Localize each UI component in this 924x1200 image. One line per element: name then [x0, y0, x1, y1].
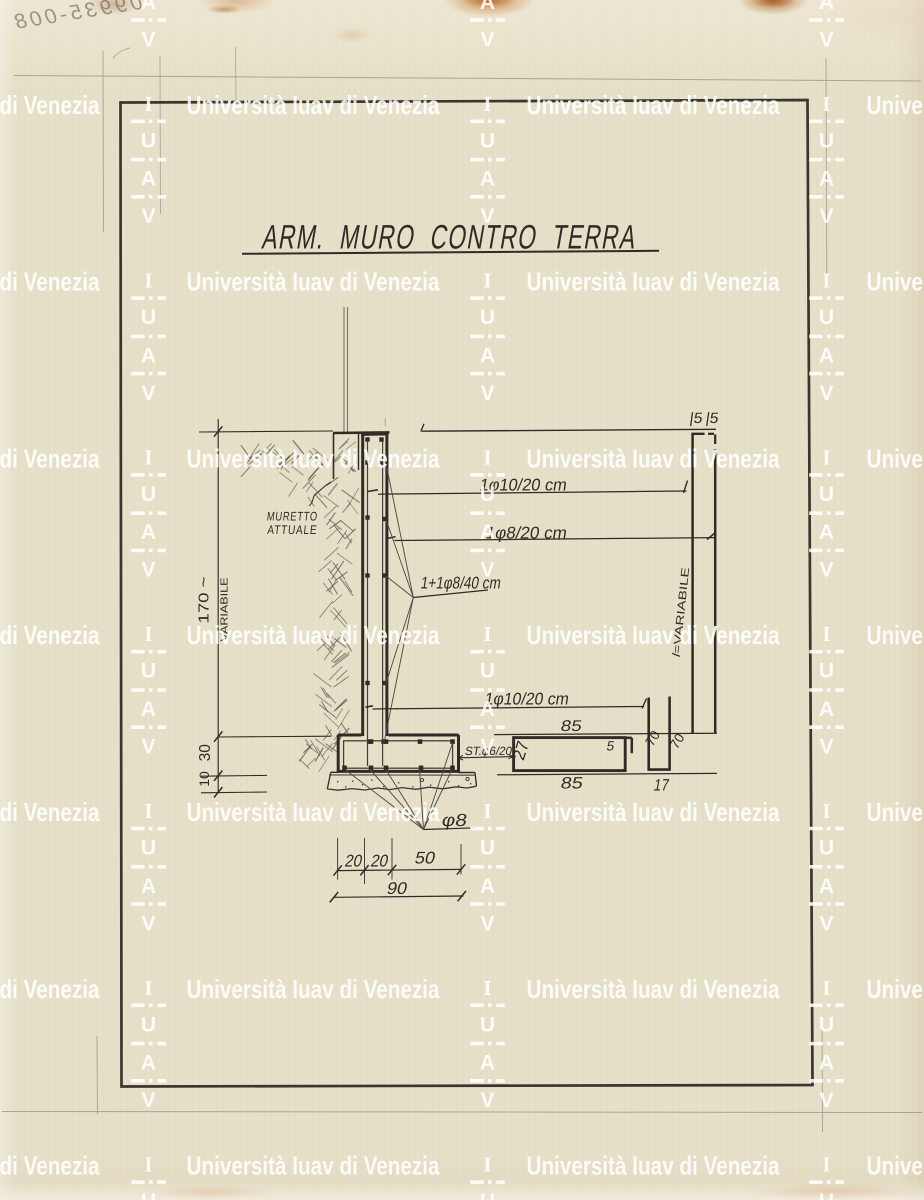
- svg-text:Università Iuav di Venezia: Università Iuav di Venezia: [867, 797, 924, 827]
- svg-text:I: I: [822, 976, 830, 1000]
- svg-text:U: U: [141, 1190, 156, 1200]
- svg-text:Università Iuav di Venezia: Università Iuav di Venezia: [867, 267, 924, 297]
- svg-text:Università Iuav di Venezia: Università Iuav di Venezia: [187, 443, 440, 473]
- svg-text:V: V: [141, 382, 155, 405]
- svg-text:U: U: [480, 483, 495, 506]
- svg-text:I: I: [144, 92, 152, 116]
- svg-text:A: A: [819, 344, 834, 367]
- svg-text:Università Iuav di Venezia: Università Iuav di Venezia: [0, 1151, 100, 1181]
- svg-text:U: U: [141, 1013, 156, 1036]
- svg-text:A: A: [141, 875, 156, 898]
- svg-text:U: U: [480, 1190, 495, 1200]
- svg-text:I: I: [144, 445, 152, 469]
- svg-text:V: V: [141, 559, 155, 582]
- svg-text:I: I: [483, 92, 491, 116]
- svg-text:I: I: [483, 799, 491, 823]
- svg-text:V: V: [141, 736, 155, 759]
- svg-text:V: V: [480, 736, 494, 759]
- svg-text:U: U: [480, 129, 495, 152]
- svg-text:A: A: [819, 521, 834, 544]
- svg-text:V: V: [480, 1089, 494, 1112]
- svg-text:U: U: [480, 1013, 495, 1036]
- svg-text:U: U: [480, 837, 495, 860]
- svg-text:V: V: [480, 382, 494, 405]
- svg-text:Università Iuav di Venezia: Università Iuav di Venezia: [187, 90, 440, 120]
- svg-text:U: U: [480, 660, 495, 683]
- svg-text:Università Iuav di Venezia: Università Iuav di Venezia: [187, 267, 440, 297]
- svg-text:Università Iuav di Venezia: Università Iuav di Venezia: [527, 267, 780, 297]
- svg-text:Università Iuav di Venezia: Università Iuav di Venezia: [527, 620, 780, 650]
- svg-text:Università Iuav di Venezia: Università Iuav di Venezia: [0, 974, 100, 1004]
- svg-text:Università Iuav di Venezia: Università Iuav di Venezia: [187, 797, 440, 827]
- svg-text:A: A: [141, 344, 156, 367]
- svg-text:V: V: [141, 28, 155, 51]
- svg-text:A: A: [480, 168, 495, 191]
- svg-text:I: I: [822, 269, 830, 293]
- svg-text:V: V: [819, 912, 833, 935]
- svg-text:A: A: [819, 1052, 834, 1075]
- svg-text:V: V: [819, 736, 833, 759]
- svg-text:Università Iuav di Venezia: Università Iuav di Venezia: [187, 1151, 440, 1181]
- svg-text:A: A: [819, 875, 834, 898]
- svg-text:I: I: [822, 445, 830, 469]
- svg-text:A: A: [819, 0, 834, 14]
- svg-text:U: U: [819, 1190, 834, 1200]
- svg-text:I: I: [483, 622, 491, 646]
- svg-text:Università Iuav di Venezia: Università Iuav di Venezia: [867, 620, 924, 650]
- svg-text:A: A: [141, 0, 156, 14]
- svg-text:I: I: [144, 1153, 152, 1177]
- svg-text:I: I: [822, 799, 830, 823]
- svg-text:U: U: [141, 129, 156, 152]
- svg-text:U: U: [819, 129, 834, 152]
- svg-text:U: U: [819, 660, 834, 683]
- svg-text:U: U: [819, 306, 834, 329]
- svg-text:A: A: [480, 521, 495, 544]
- svg-text:A: A: [819, 168, 834, 191]
- svg-text:Università Iuav di Venezia: Università Iuav di Venezia: [867, 1151, 924, 1181]
- svg-text:I: I: [144, 622, 152, 646]
- svg-text:Università Iuav di Venezia: Università Iuav di Venezia: [527, 443, 780, 473]
- svg-text:V: V: [480, 28, 494, 51]
- svg-text:A: A: [480, 875, 495, 898]
- svg-text:A: A: [480, 0, 495, 14]
- svg-text:I: I: [144, 799, 152, 823]
- svg-text:A: A: [141, 698, 156, 721]
- svg-text:Università Iuav di Venezia: Università Iuav di Venezia: [0, 90, 100, 120]
- svg-text:U: U: [141, 483, 156, 506]
- svg-text:A: A: [480, 1052, 495, 1075]
- svg-text:V: V: [480, 559, 494, 582]
- svg-text:Università Iuav di Venezia: Università Iuav di Venezia: [527, 1151, 780, 1181]
- svg-text:Università Iuav di Venezia: Università Iuav di Venezia: [867, 90, 924, 120]
- svg-text:I: I: [144, 269, 152, 293]
- svg-text:I: I: [483, 1153, 491, 1177]
- svg-text:A: A: [480, 344, 495, 367]
- svg-text:V: V: [819, 382, 833, 405]
- svg-text:Università Iuav di Venezia: Università Iuav di Venezia: [0, 443, 100, 473]
- svg-text:V: V: [819, 1089, 833, 1112]
- svg-text:I: I: [144, 976, 152, 1000]
- svg-text:Università Iuav di Venezia: Università Iuav di Venezia: [0, 267, 100, 297]
- svg-text:I: I: [822, 92, 830, 116]
- svg-text:Università Iuav di Venezia: Università Iuav di Venezia: [867, 974, 924, 1004]
- svg-text:V: V: [480, 205, 494, 228]
- svg-text:A: A: [141, 168, 156, 191]
- svg-text:Università Iuav di Venezia: Università Iuav di Venezia: [867, 443, 924, 473]
- svg-text:V: V: [819, 205, 833, 228]
- svg-text:Università Iuav di Venezia: Università Iuav di Venezia: [527, 90, 780, 120]
- svg-text:Università Iuav di Venezia: Università Iuav di Venezia: [527, 797, 780, 827]
- svg-text:Università Iuav di Venezia: Università Iuav di Venezia: [187, 974, 440, 1004]
- svg-text:U: U: [819, 1013, 834, 1036]
- svg-text:V: V: [480, 912, 494, 935]
- svg-text:Università Iuav di Venezia: Università Iuav di Venezia: [0, 797, 100, 827]
- svg-text:I: I: [822, 622, 830, 646]
- svg-text:V: V: [819, 559, 833, 582]
- svg-text:U: U: [141, 837, 156, 860]
- svg-text:I: I: [483, 976, 491, 1000]
- svg-text:A: A: [480, 698, 495, 721]
- svg-text:U: U: [819, 483, 834, 506]
- svg-text:A: A: [141, 1052, 156, 1075]
- svg-text:I: I: [822, 1153, 830, 1177]
- svg-text:U: U: [141, 660, 156, 683]
- svg-text:I: I: [483, 269, 491, 293]
- svg-text:I: I: [483, 445, 491, 469]
- svg-text:Università Iuav di Venezia: Università Iuav di Venezia: [527, 974, 780, 1004]
- svg-text:U: U: [819, 837, 834, 860]
- svg-text:V: V: [141, 1089, 155, 1112]
- svg-text:A: A: [819, 698, 834, 721]
- svg-text:Università Iuav di Venezia: Università Iuav di Venezia: [187, 620, 440, 650]
- svg-text:V: V: [141, 912, 155, 935]
- svg-text:A: A: [141, 521, 156, 544]
- svg-text:V: V: [141, 205, 155, 228]
- svg-text:Università Iuav di Venezia: Università Iuav di Venezia: [0, 620, 100, 650]
- svg-text:V: V: [819, 28, 833, 51]
- svg-text:U: U: [480, 306, 495, 329]
- svg-text:U: U: [141, 306, 156, 329]
